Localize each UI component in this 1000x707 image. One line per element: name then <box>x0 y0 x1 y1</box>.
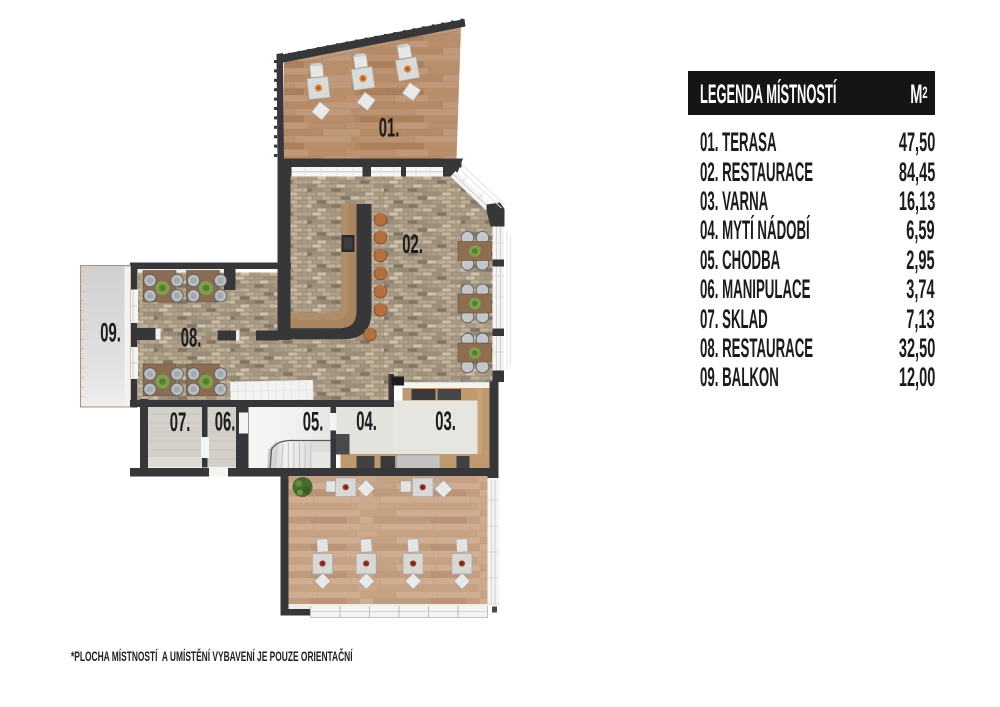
svg-text:08.: 08. <box>181 323 202 353</box>
svg-text:06.: 06. <box>215 407 236 437</box>
svg-text:04.: 04. <box>356 407 377 437</box>
svg-text:05.: 05. <box>303 407 324 437</box>
svg-text:01.: 01. <box>379 113 400 143</box>
svg-text:02.: 02. <box>402 230 423 260</box>
svg-text:07.: 07. <box>170 408 191 438</box>
svg-text:03.: 03. <box>435 407 456 437</box>
svg-text:09.: 09. <box>100 318 121 348</box>
